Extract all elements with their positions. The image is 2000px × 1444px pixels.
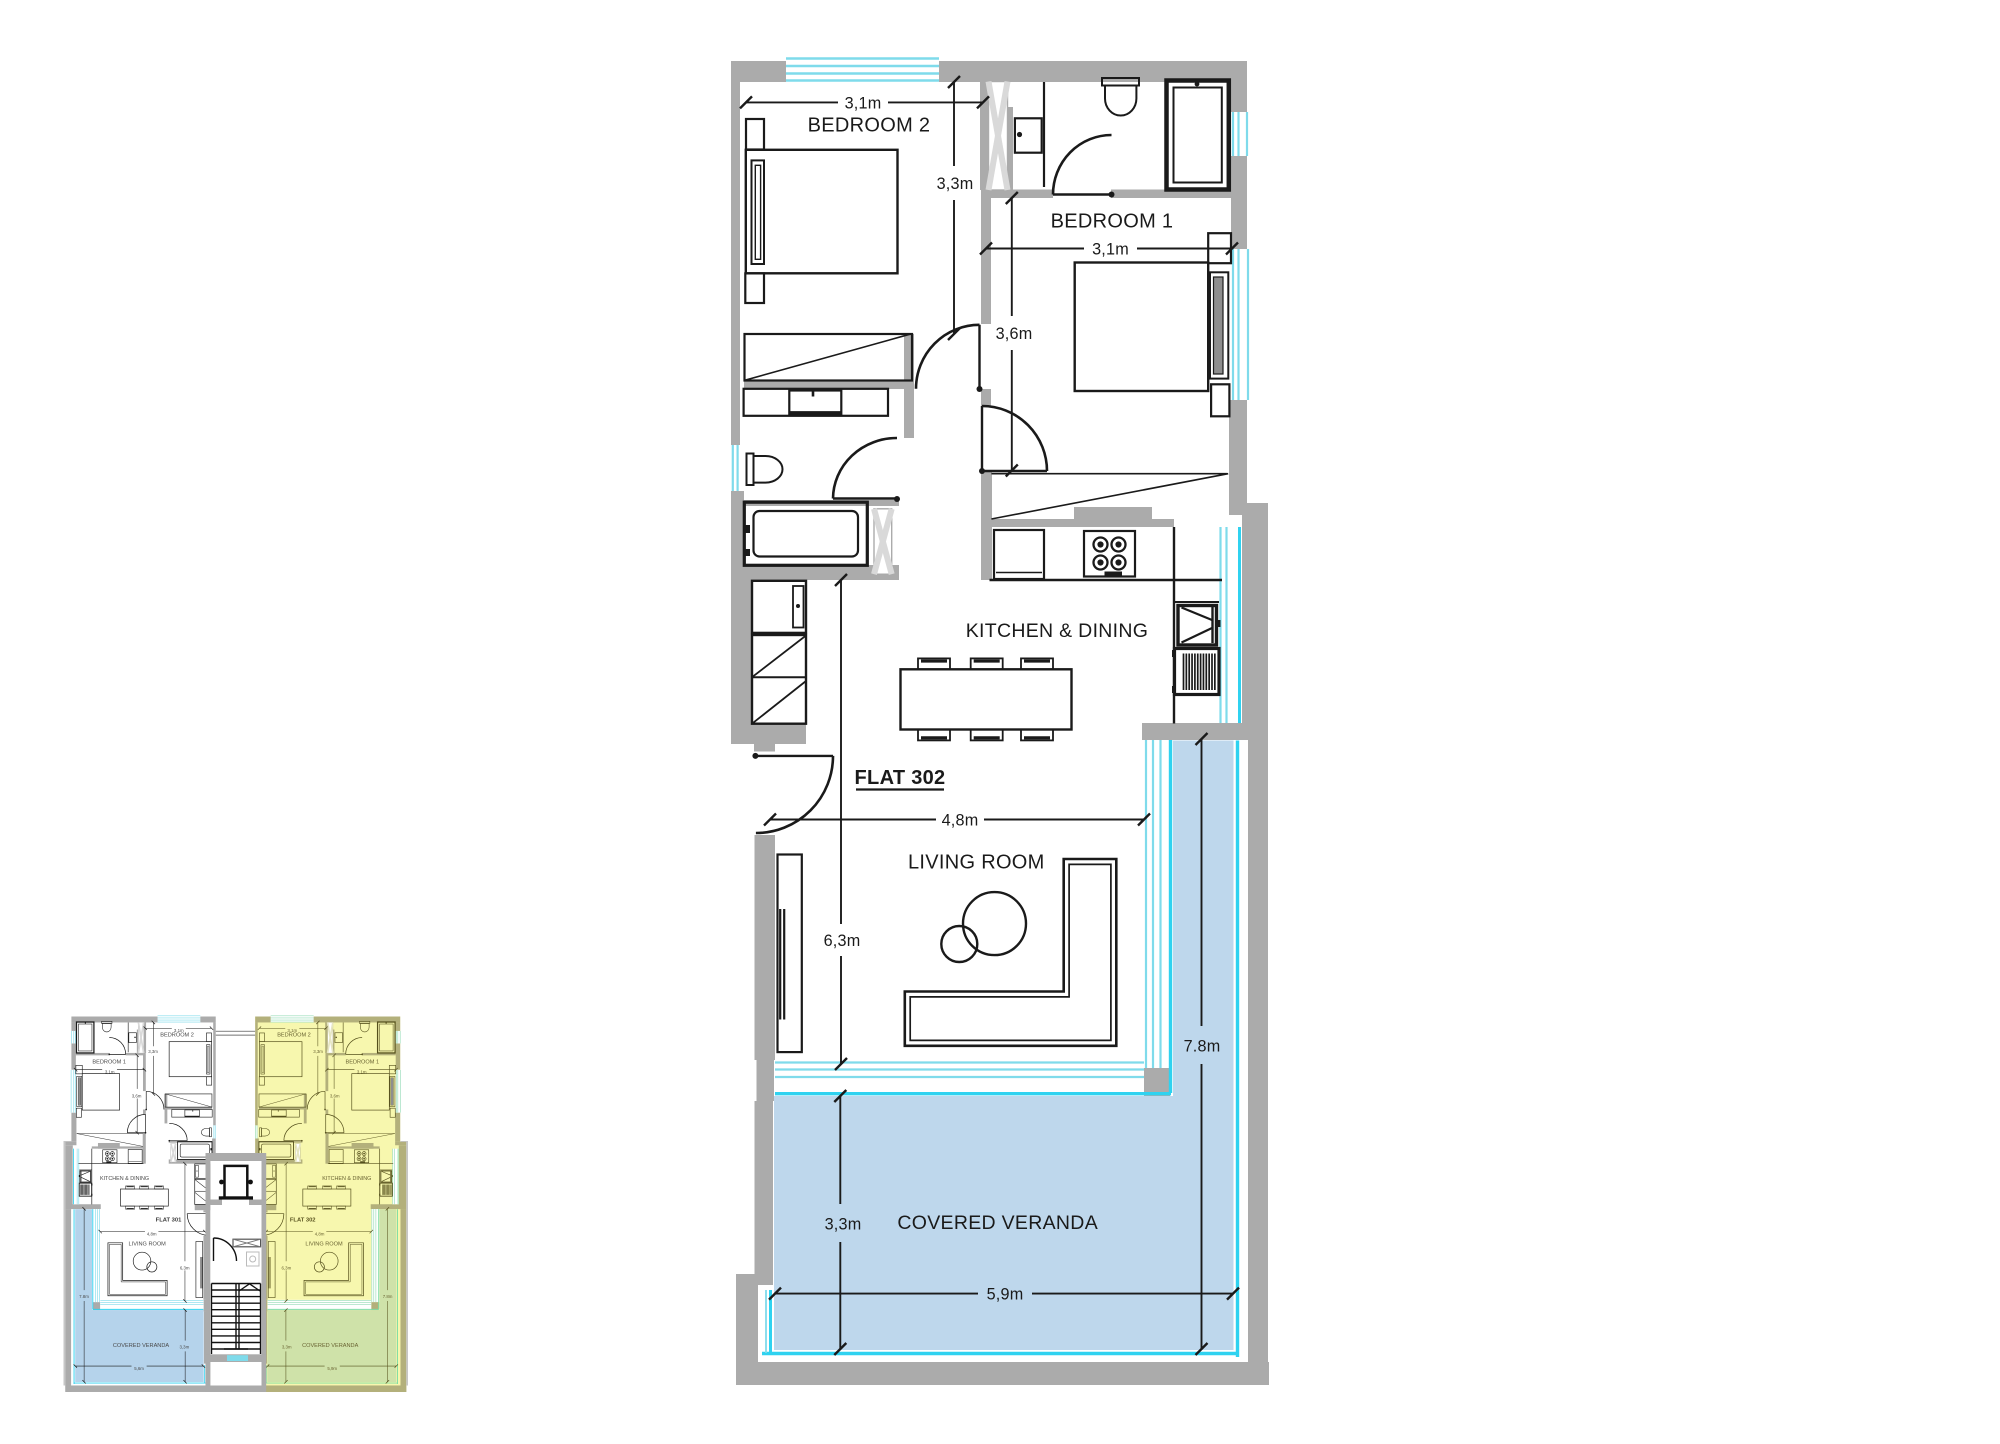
- svg-text:7.8m: 7.8m: [79, 1294, 89, 1299]
- svg-text:FLAT 302: FLAT 302: [290, 1218, 316, 1224]
- svg-text:5,9m: 5,9m: [987, 1286, 1024, 1304]
- svg-text:3,3m: 3,3m: [825, 1216, 862, 1234]
- svg-text:3,3m: 3,3m: [313, 1049, 323, 1054]
- svg-text:KITCHEN & DINING: KITCHEN & DINING: [966, 620, 1148, 642]
- svg-text:6,3m: 6,3m: [824, 932, 861, 950]
- svg-text:3,1m: 3,1m: [1092, 241, 1129, 259]
- svg-text:COVERED VERANDA: COVERED VERANDA: [113, 1343, 170, 1349]
- svg-text:LIVING ROOM: LIVING ROOM: [305, 1241, 343, 1247]
- svg-text:BEDROOM 1: BEDROOM 1: [346, 1060, 380, 1066]
- svg-text:3,3m: 3,3m: [148, 1049, 158, 1054]
- svg-text:FLAT 301: FLAT 301: [156, 1218, 182, 1224]
- svg-text:KITCHEN & DINING: KITCHEN & DINING: [322, 1176, 371, 1182]
- svg-text:COVERED VERANDA: COVERED VERANDA: [302, 1343, 359, 1349]
- svg-text:4,8m: 4,8m: [147, 1232, 157, 1237]
- svg-text:LIVING ROOM: LIVING ROOM: [908, 852, 1045, 874]
- svg-text:4,8m: 4,8m: [942, 812, 979, 830]
- svg-text:3,6m: 3,6m: [132, 1093, 142, 1098]
- svg-text:4,8m: 4,8m: [315, 1232, 325, 1237]
- svg-text:5,6m: 5,6m: [134, 1366, 144, 1371]
- svg-text:3,3m: 3,3m: [282, 1344, 292, 1349]
- svg-text:3,6m: 3,6m: [996, 325, 1033, 343]
- svg-text:BEDROOM 1: BEDROOM 1: [92, 1060, 126, 1066]
- svg-text:BEDROOM 2: BEDROOM 2: [160, 1033, 194, 1039]
- svg-text:COVERED VERANDA: COVERED VERANDA: [897, 1212, 1098, 1234]
- svg-text:BEDROOM 1: BEDROOM 1: [1051, 211, 1174, 233]
- svg-text:BEDROOM 2: BEDROOM 2: [277, 1033, 311, 1039]
- svg-text:3,1m: 3,1m: [357, 1070, 367, 1075]
- svg-text:3,1m: 3,1m: [105, 1070, 115, 1075]
- svg-text:3,1m: 3,1m: [287, 1028, 297, 1033]
- svg-text:BEDROOM 2: BEDROOM 2: [808, 115, 931, 137]
- svg-text:LIVING ROOM: LIVING ROOM: [129, 1241, 167, 1247]
- svg-text:5,9m: 5,9m: [327, 1366, 337, 1371]
- svg-text:3,1m: 3,1m: [845, 95, 882, 113]
- svg-text:3,3m: 3,3m: [937, 175, 974, 193]
- svg-text:KITCHEN & DINING: KITCHEN & DINING: [100, 1176, 149, 1182]
- svg-text:FLAT 302: FLAT 302: [855, 767, 946, 789]
- svg-text:7.8m: 7.8m: [383, 1294, 393, 1299]
- svg-text:3,3m: 3,3m: [180, 1344, 190, 1349]
- svg-text:6,3m: 6,3m: [180, 1266, 190, 1271]
- svg-text:7.8m: 7.8m: [1184, 1038, 1221, 1056]
- svg-text:6,3m: 6,3m: [282, 1266, 292, 1271]
- svg-text:3,6m: 3,6m: [330, 1093, 340, 1098]
- svg-text:3,1m: 3,1m: [174, 1028, 184, 1033]
